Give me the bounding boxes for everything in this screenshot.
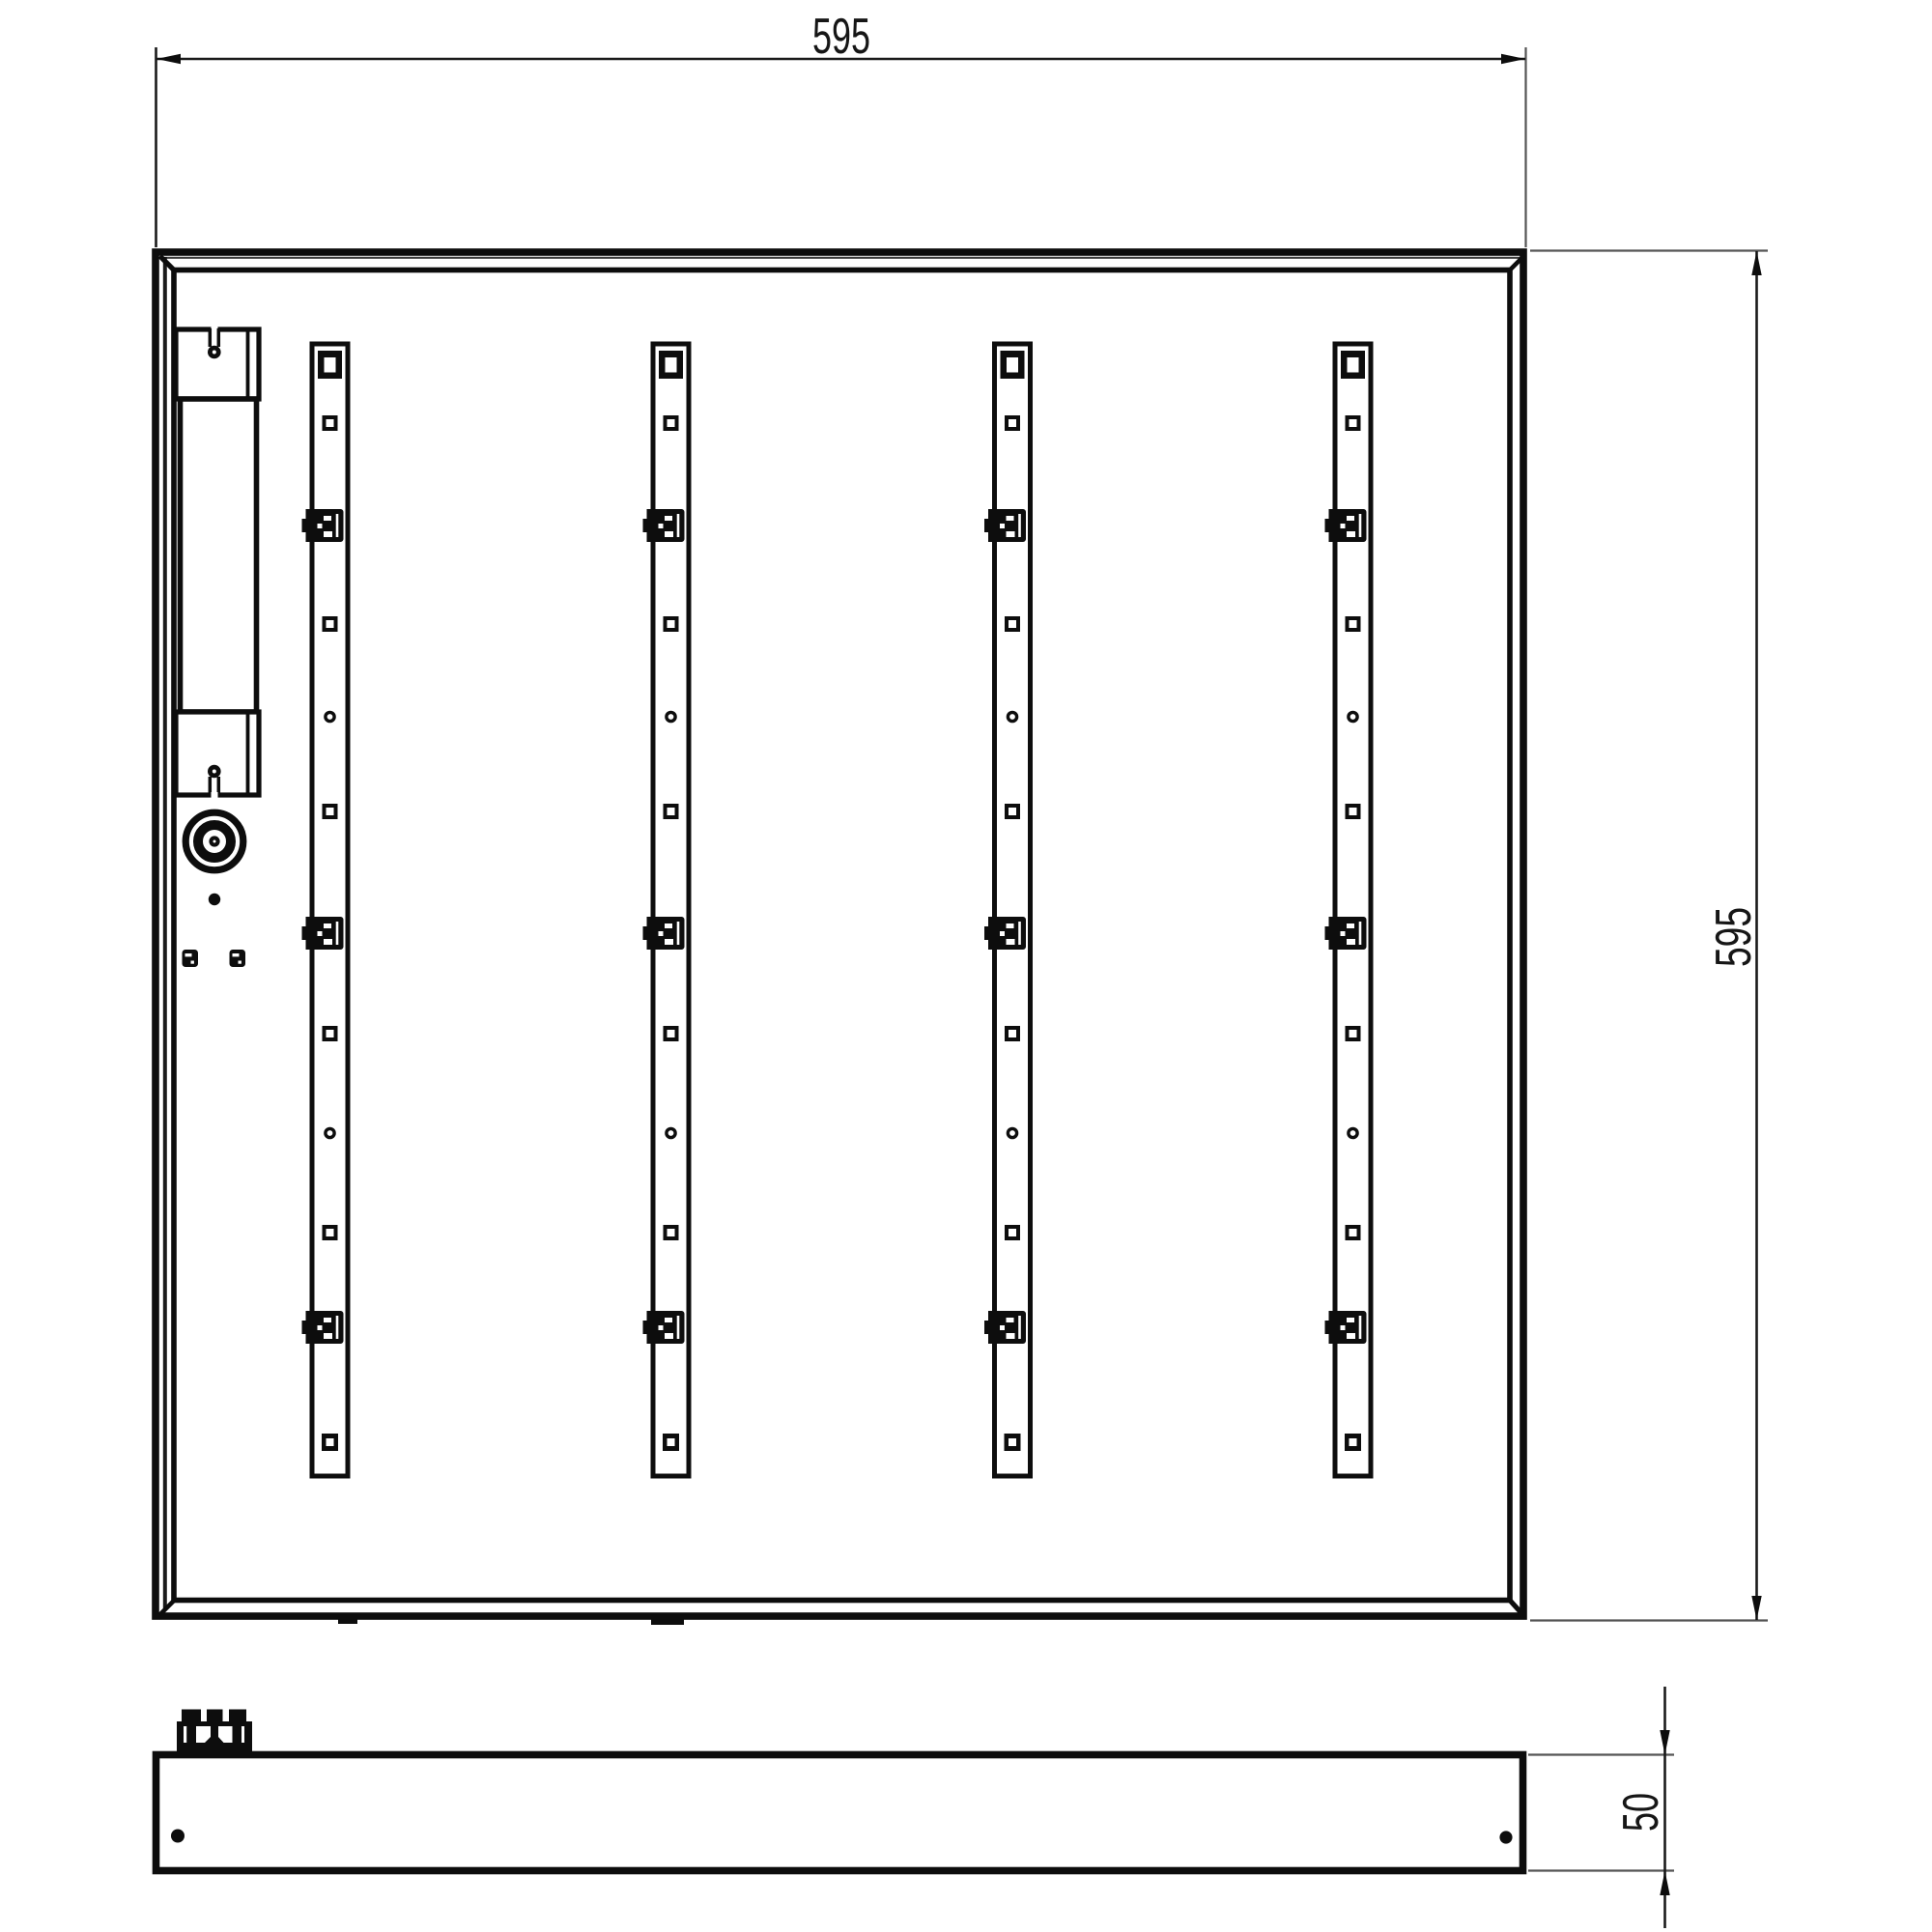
svg-text:595: 595 <box>1706 907 1762 967</box>
svg-text:50: 50 <box>1613 1793 1669 1832</box>
svg-text:595: 595 <box>812 9 870 65</box>
